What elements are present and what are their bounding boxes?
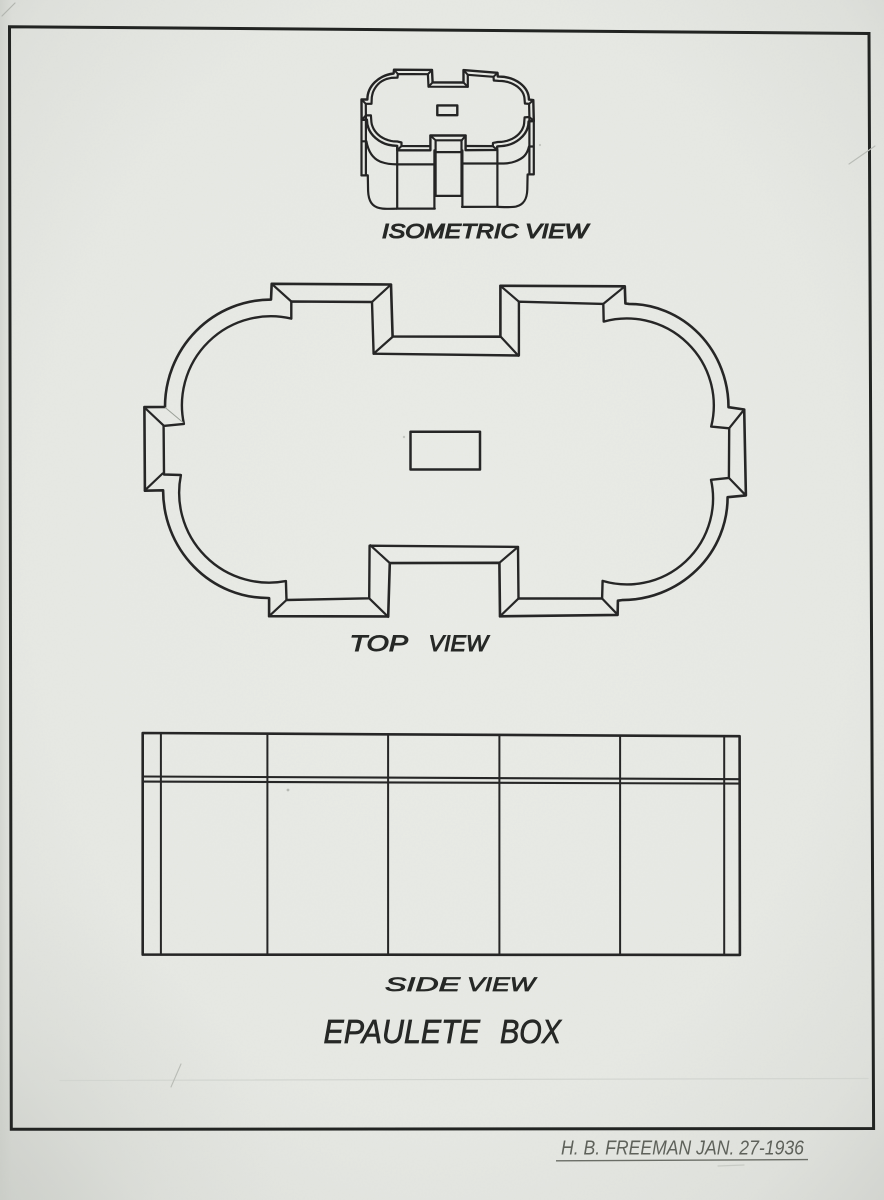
svg-text:TOP: TOP	[350, 631, 409, 656]
svg-text:BOX: BOX	[500, 1013, 563, 1050]
svg-text:H. B. FREEMAN JAN. 27-1936: H. B. FREEMAN JAN. 27-1936	[561, 1138, 805, 1160]
svg-text:VIEW: VIEW	[467, 974, 537, 996]
svg-text:ISOMETRIC VIEW: ISOMETRIC VIEW	[382, 221, 591, 243]
svg-text:EPAULETE: EPAULETE	[324, 1013, 481, 1050]
svg-text:SIDE: SIDE	[385, 974, 462, 996]
svg-text:VIEW: VIEW	[429, 631, 491, 656]
